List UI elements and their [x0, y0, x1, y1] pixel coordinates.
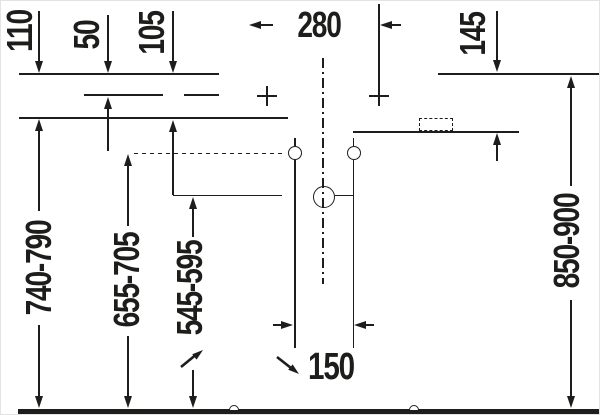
arrow-down-icon — [169, 61, 177, 73]
dim-extension-280 — [378, 4, 379, 91]
dim-label-850-900: 850-900 — [549, 194, 585, 289]
technical-drawing-canvas: 110 740-790 50 105 280 145 655-705 545-5… — [0, 0, 600, 415]
dim-line-280-left-tail — [261, 24, 273, 25]
dim-label-150: 150 — [308, 348, 354, 386]
arrow-down-icon — [35, 61, 43, 73]
dim-line-740-790-lower — [38, 325, 39, 396]
pipe-arrow-left-tail — [273, 324, 281, 325]
arrow-down-icon — [124, 396, 132, 408]
dim-extension-655-705-dashed — [134, 153, 286, 154]
arrow-up-icon — [493, 133, 501, 145]
arrow-up-icon — [189, 197, 197, 209]
fixing-hole-right — [347, 146, 361, 160]
basin-lower-edge-left — [19, 117, 288, 119]
dim-line-545-595-lower — [192, 370, 193, 396]
arrow-left-icon — [354, 321, 366, 329]
diagonal-arrow-se-icon — [273, 353, 305, 381]
dim-line-655-705-lower — [127, 336, 128, 396]
arrow-right-icon — [281, 321, 293, 329]
arrow-left-icon — [249, 21, 261, 29]
dim-line-280-right-tail — [392, 24, 401, 25]
dim-label-145: 145 — [455, 12, 491, 55]
arrow-up-icon — [124, 154, 132, 166]
basin-mid-edge-left-b — [184, 94, 219, 96]
arrow-left-icon — [380, 21, 392, 29]
floor-notch-right — [409, 405, 419, 410]
pipe-arrow-right-tail — [366, 324, 374, 325]
dim-label-655-705: 655-705 — [109, 233, 145, 328]
basin-top-edge-left — [19, 73, 219, 75]
dim-line-50-top — [107, 15, 108, 61]
dim-line-105-top — [172, 11, 173, 61]
dim-label-110: 110 — [2, 10, 38, 52]
basin-top-edge-right — [438, 73, 599, 75]
arrow-up-icon — [567, 76, 575, 88]
tap-hole-cross-left-vertical — [266, 86, 267, 106]
drain-circle — [313, 186, 335, 208]
floor-notch-left — [229, 405, 239, 410]
dim-line-740-790-upper — [38, 131, 39, 211]
floor-line — [18, 409, 599, 414]
arrow-up-icon — [35, 119, 43, 131]
diagonal-arrow-ne-icon — [175, 343, 207, 371]
arrow-down-icon — [189, 396, 197, 408]
dim-line-850-900-upper — [570, 88, 571, 186]
arrow-down-icon — [104, 61, 112, 73]
dim-label-740-790: 740-790 — [21, 221, 57, 316]
vertical-centerline — [322, 58, 324, 284]
dim-label-50: 50 — [69, 21, 105, 50]
arrow-down-icon — [35, 396, 43, 408]
dim-line-850-900-lower — [570, 300, 571, 396]
dim-line-105-tail — [172, 132, 173, 195]
dim-line-145-tail — [496, 145, 497, 161]
fixing-hole-right-tick — [353, 138, 354, 146]
dim-line-50-tail — [107, 109, 108, 151]
drain-center-line-right — [335, 195, 353, 196]
dim-label-280: 280 — [297, 7, 340, 43]
dim-line-545-595-upper — [192, 209, 193, 237]
fixing-hole-left-tick — [294, 138, 295, 146]
arrow-down-icon — [567, 396, 575, 408]
dim-label-545-595: 545-595 — [172, 241, 208, 336]
arrow-up-icon — [104, 97, 112, 109]
arrow-up-icon — [169, 120, 177, 132]
mounting-bracket-dashed-outline — [419, 118, 453, 131]
dim-label-105: 105 — [134, 11, 170, 54]
arrow-down-icon — [493, 60, 501, 72]
drain-pipe-left-line — [294, 160, 295, 348]
dim-line-655-705-upper — [127, 166, 128, 226]
drain-pipe-right-line — [353, 160, 354, 348]
dim-line-145-top — [496, 11, 497, 60]
basin-mid-edge-left-a — [84, 94, 163, 96]
fixing-hole-left — [288, 146, 302, 160]
